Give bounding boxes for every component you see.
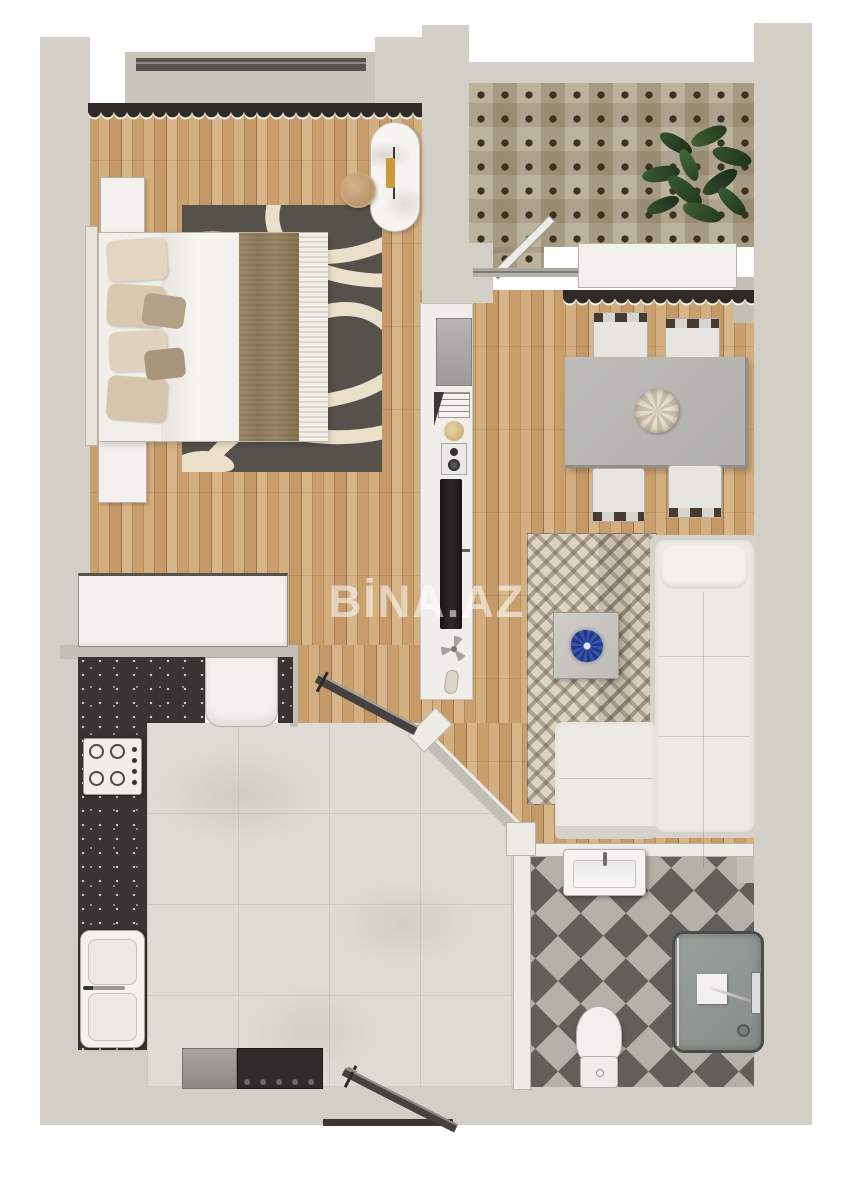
tv-stand-arm — [462, 549, 470, 552]
faucet — [83, 986, 125, 990]
vanity-stool — [340, 172, 376, 208]
chair-top-rail — [593, 512, 644, 521]
bedroom-curtain — [88, 103, 422, 122]
shower-glass-edge — [677, 938, 679, 1046]
sofa-chaise-section — [555, 722, 656, 832]
wall-bedroom-top-right — [375, 37, 422, 103]
coffee-table — [553, 612, 619, 679]
dining-chair — [593, 312, 648, 360]
table-centerpiece-flowers — [635, 389, 679, 433]
appliance-knob — [308, 1079, 314, 1085]
console-cabinet — [436, 318, 472, 386]
toilet-bowl — [576, 1006, 622, 1062]
appliance-knob — [292, 1079, 298, 1085]
mirror-gold-handle — [386, 158, 395, 188]
seam — [703, 592, 704, 868]
bed — [98, 232, 328, 442]
remote — [443, 669, 459, 695]
shower-tray — [672, 931, 764, 1053]
burner — [110, 744, 125, 759]
wall-bathroom-left — [513, 843, 531, 1090]
stove-knob — [132, 758, 137, 763]
burner — [110, 771, 125, 786]
wardrobe — [78, 573, 288, 647]
chair-top-rail — [666, 319, 719, 328]
dining-table — [565, 357, 748, 468]
speaker — [441, 443, 467, 475]
sink-basin — [88, 993, 137, 1041]
seam — [559, 778, 653, 779]
wall-diagonal-bottom-jamb — [506, 822, 536, 856]
vanity-faucet — [603, 852, 607, 866]
bed-ribbed-runner — [299, 233, 328, 441]
burner — [89, 771, 104, 786]
sofa-chaise-base — [555, 826, 656, 839]
fan-hub — [451, 646, 457, 652]
table-lamp — [444, 421, 464, 441]
shower-handle-bar — [751, 972, 761, 1014]
sofa-long-section — [655, 540, 754, 832]
sofa-back-cushion — [660, 545, 748, 589]
pillow — [106, 375, 169, 423]
appliance-knob — [260, 1079, 266, 1085]
stove — [83, 738, 142, 795]
nightstand-bottom — [98, 440, 147, 503]
fan — [441, 636, 467, 662]
kitchen-counter-top — [78, 657, 205, 723]
balcony-plant — [638, 126, 754, 234]
appliance-steel — [182, 1048, 237, 1089]
chair-top-rail — [669, 508, 721, 517]
kitchen-sink — [80, 930, 145, 1048]
living-curtain — [563, 290, 754, 308]
dining-chair — [668, 465, 722, 518]
toilet-flush-button — [596, 1069, 604, 1077]
speaker-tweeter — [450, 448, 458, 456]
nightstand-top — [100, 177, 145, 239]
bathroom-vanity — [563, 849, 646, 896]
appliance-knob — [244, 1079, 250, 1085]
dining-chair — [592, 468, 645, 522]
wall-bathroom-step — [737, 857, 754, 883]
seam — [659, 736, 750, 737]
dressing-table — [370, 122, 420, 232]
tv-console — [420, 303, 473, 700]
pillow — [141, 292, 187, 330]
plant-leaf — [681, 200, 724, 225]
coffee-table-blue-flowers — [571, 630, 603, 662]
speaker-woofer — [448, 459, 460, 471]
plant-leaf — [711, 145, 753, 169]
stove-knob — [132, 769, 137, 774]
pillow — [144, 347, 187, 381]
seam — [659, 656, 750, 657]
kitchen-counter-sliver — [278, 657, 293, 723]
chair-top-rail — [594, 313, 647, 322]
bed-throw-blanket — [239, 233, 299, 441]
stove-knob — [132, 780, 137, 785]
floorplan-render: BİNA.AZ — [0, 0, 853, 1200]
bed-headboard — [85, 226, 98, 446]
appliance-dark — [237, 1048, 323, 1089]
bedroom-window-frame — [136, 58, 366, 71]
dishwasher — [205, 657, 278, 727]
sink-basin — [88, 939, 137, 985]
wall-balcony-top — [469, 62, 754, 83]
plant-leaf — [645, 191, 682, 219]
shower-drain — [737, 1024, 750, 1037]
appliance-knob — [276, 1079, 282, 1085]
stove-knob — [132, 747, 137, 752]
toilet-tank — [580, 1056, 618, 1088]
watermark: BİNA.AZ — [322, 576, 532, 628]
living-window-sill — [578, 243, 737, 288]
burner — [89, 744, 104, 759]
pillow — [106, 237, 169, 283]
